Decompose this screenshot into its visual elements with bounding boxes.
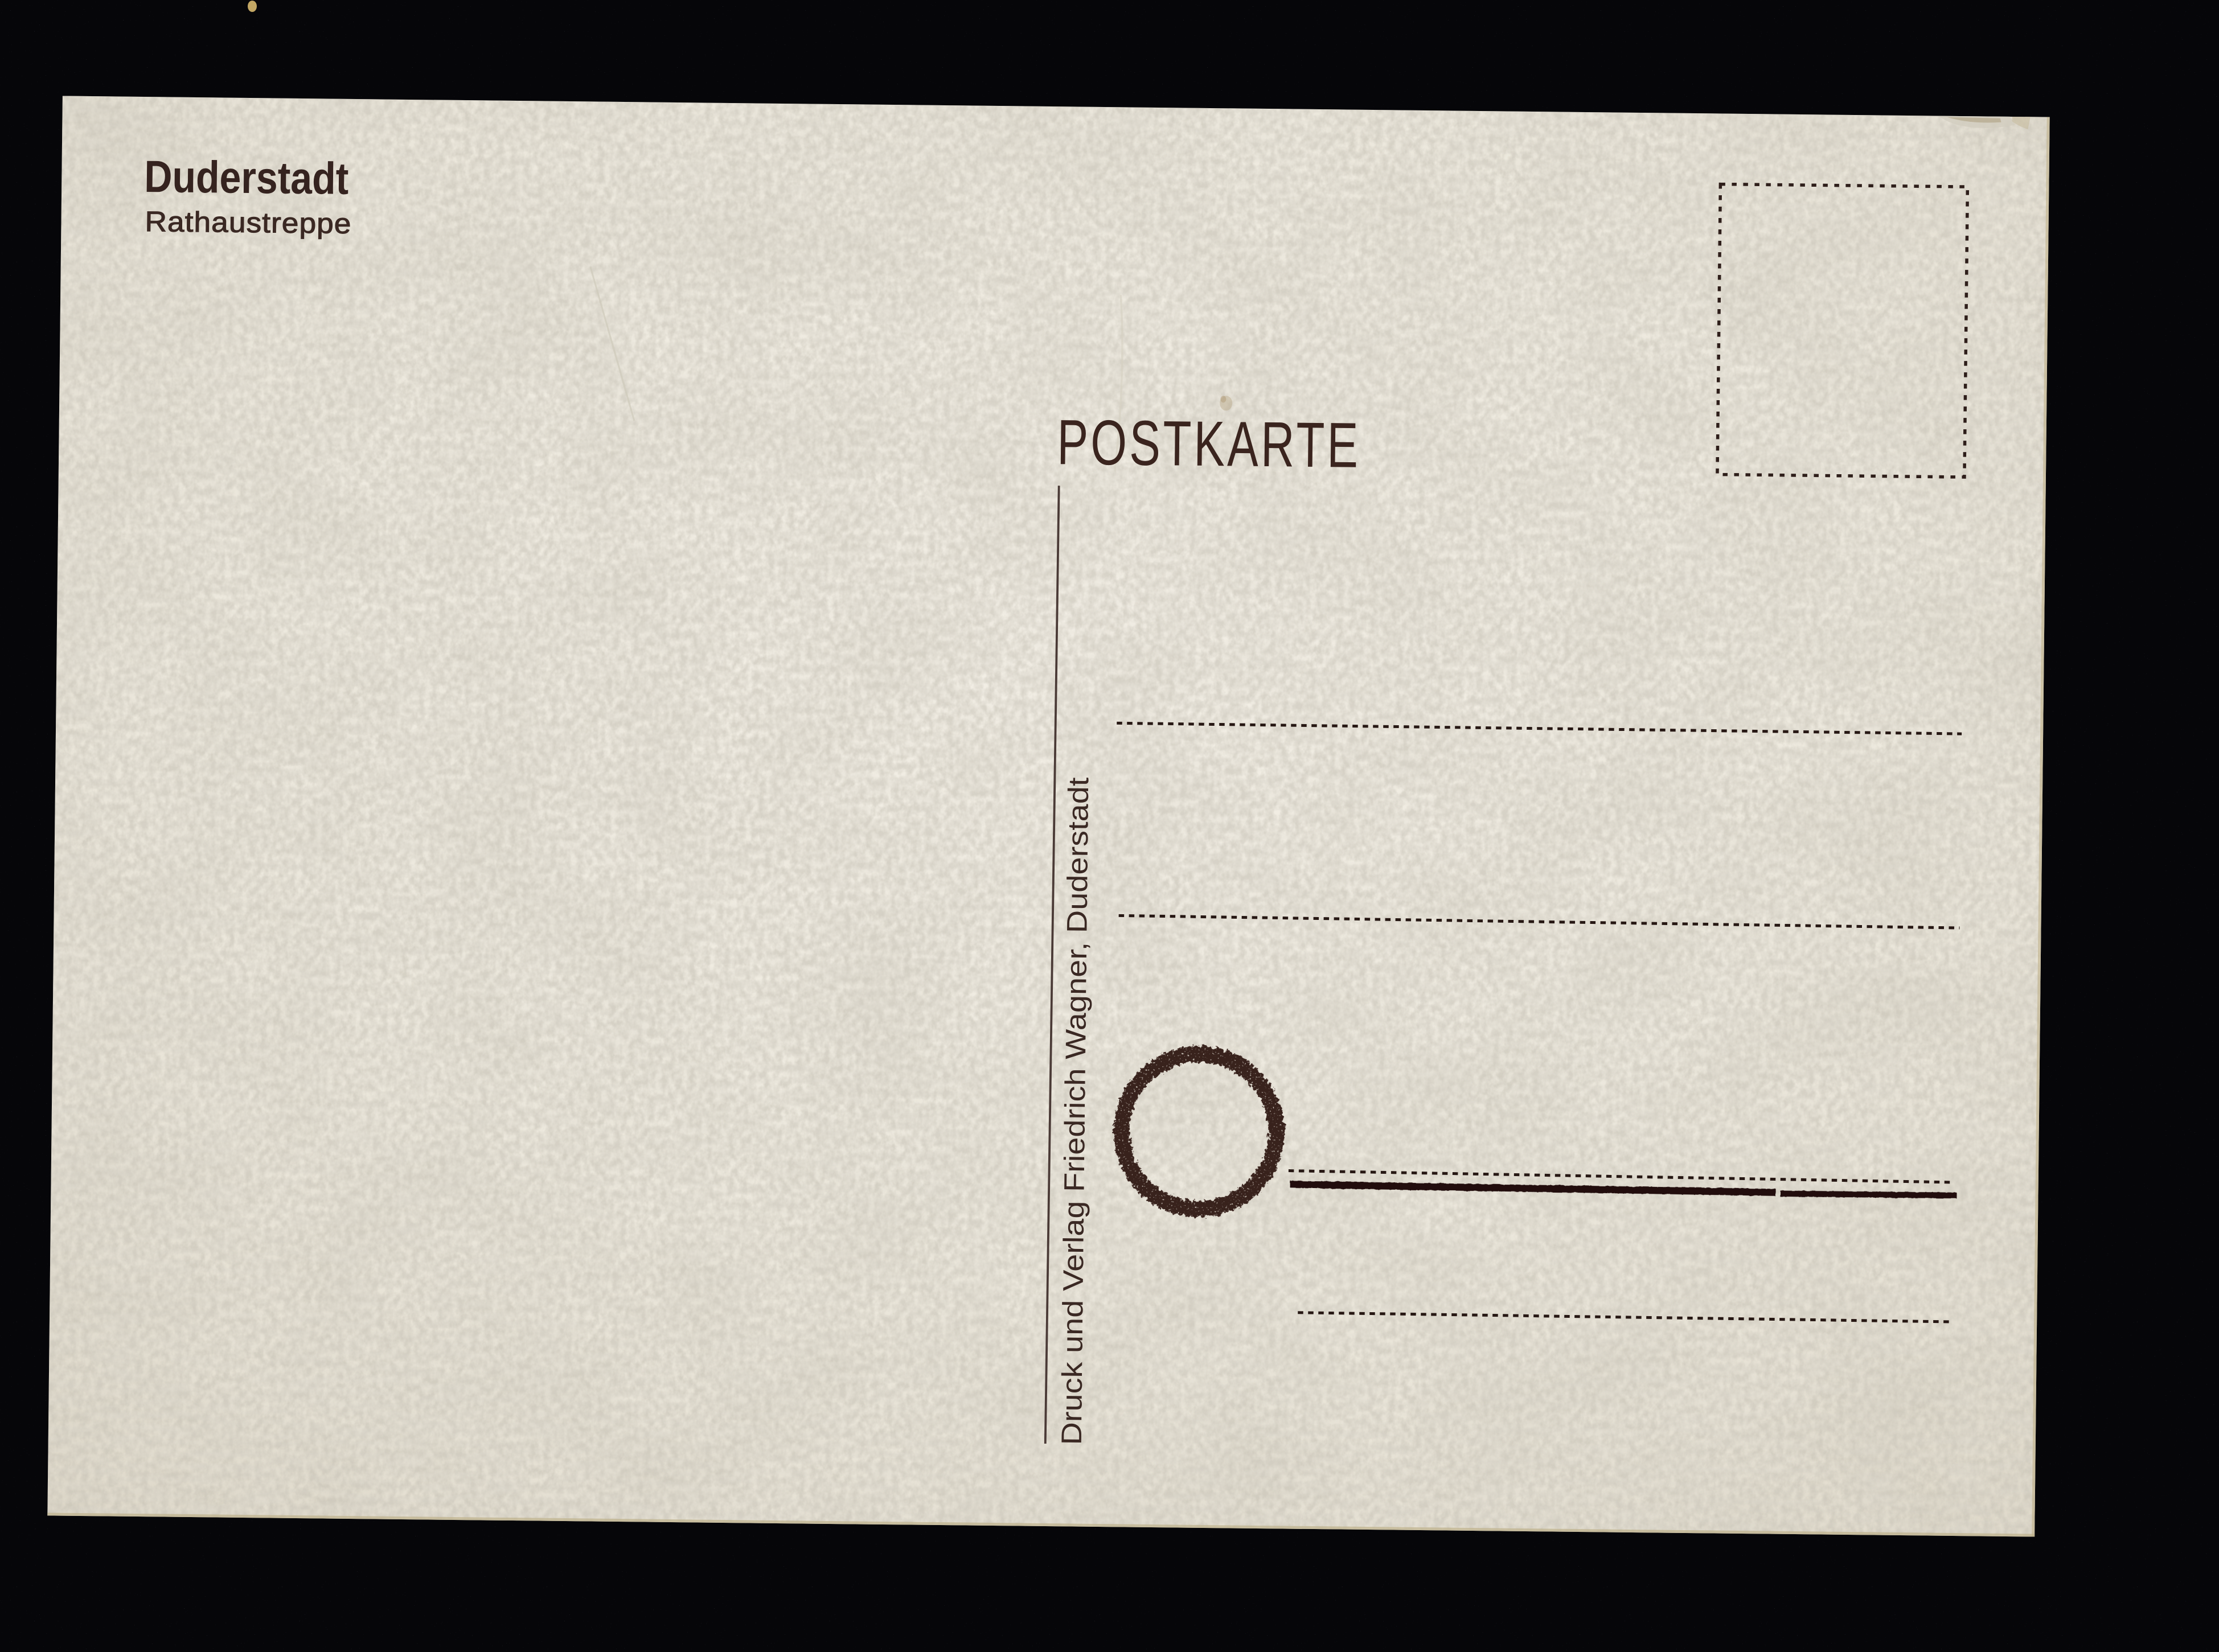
- svg-text:Duderstadt: Duderstadt: [144, 151, 349, 204]
- svg-text:Rathaustreppe: Rathaustreppe: [145, 206, 352, 240]
- svg-text:POSTKARTE: POSTKARTE: [1057, 406, 1361, 481]
